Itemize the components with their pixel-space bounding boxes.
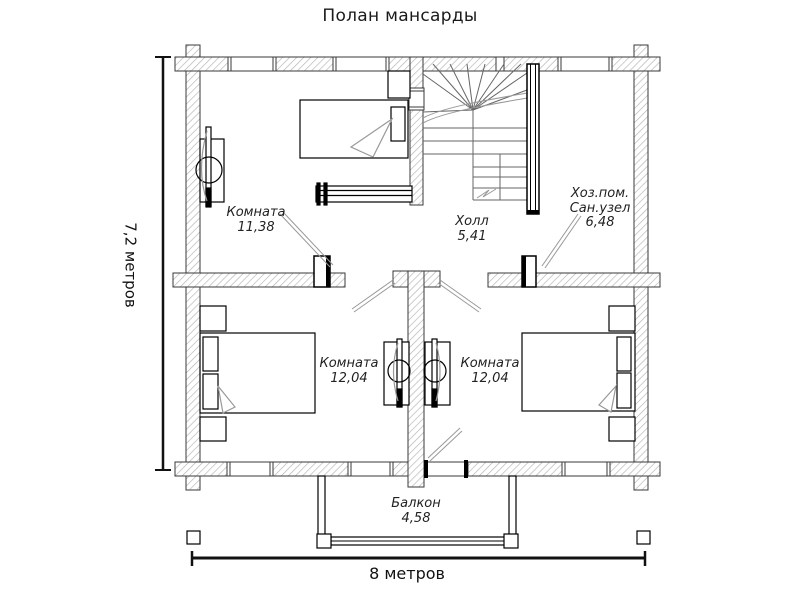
- balcony-post: [504, 534, 518, 548]
- wall-right: [634, 45, 648, 490]
- nightstand: [200, 417, 226, 441]
- room-name: Балкон: [356, 497, 476, 512]
- room-area: 4,58: [356, 512, 476, 527]
- pillow: [617, 373, 631, 408]
- window: [227, 462, 273, 476]
- room-area: 6,48: [540, 216, 660, 231]
- wall-center-vertical: [408, 271, 424, 487]
- wall-middle-right: [488, 273, 660, 287]
- porch-post: [187, 531, 200, 544]
- nightstand: [388, 71, 410, 98]
- nightstand: [200, 306, 226, 331]
- log-joint: [496, 57, 504, 71]
- bench: [316, 183, 412, 205]
- window: [558, 57, 612, 71]
- staircase: [423, 64, 527, 200]
- room-area: 11,38: [196, 221, 316, 236]
- room-label-bedroom-right: Комната 12,04: [430, 357, 550, 386]
- window: [348, 462, 393, 476]
- balcony-railing: [318, 476, 325, 536]
- stair-partition: [527, 64, 539, 214]
- balcony-railing: [509, 476, 516, 536]
- pillow: [617, 337, 631, 371]
- room-label-bedroom-top: Комната 11,38: [196, 206, 316, 235]
- page-title: Полан мансарды: [0, 6, 800, 26]
- room-name: Комната: [196, 206, 316, 221]
- wall-left: [186, 45, 200, 490]
- room-area: 5,41: [412, 230, 532, 245]
- stair-break-mark: [477, 189, 496, 198]
- room-area: 12,04: [430, 372, 550, 387]
- nightstand: [609, 306, 635, 331]
- room-label-hall: Холл 5,41: [412, 215, 532, 244]
- room-name: Комната: [430, 357, 550, 372]
- pillow: [203, 374, 218, 409]
- room-name: Холл: [412, 215, 532, 230]
- room-label-bedroom-left: Комната 12,04: [289, 357, 409, 386]
- window: [228, 57, 276, 71]
- dimension-label-width: 8 метров: [292, 564, 522, 583]
- dimension-label-height: 7,2 метров: [122, 193, 140, 338]
- room-name: Сан.узел: [540, 202, 660, 217]
- room-name: Комната: [289, 357, 409, 372]
- room-name: Хоз.пом.: [540, 187, 660, 202]
- window: [333, 57, 389, 71]
- walls: [173, 45, 660, 490]
- nightstand: [609, 417, 635, 441]
- balcony-post: [317, 534, 331, 548]
- room-area: 12,04: [289, 372, 409, 387]
- washbasin: [196, 127, 224, 207]
- floor-plan: Полан мансарды Комната 11,38 Холл 5,41 Х…: [0, 0, 800, 600]
- porch-post: [637, 531, 650, 544]
- room-label-balcony: Балкон 4,58: [356, 497, 476, 526]
- pillow: [203, 337, 218, 371]
- pillow: [391, 107, 405, 141]
- balcony-door-opening: [424, 462, 468, 476]
- window: [562, 462, 610, 476]
- wall-center-upper: [410, 57, 423, 205]
- room-label-utility: Хоз.пом. Сан.узел 6,48: [540, 187, 660, 231]
